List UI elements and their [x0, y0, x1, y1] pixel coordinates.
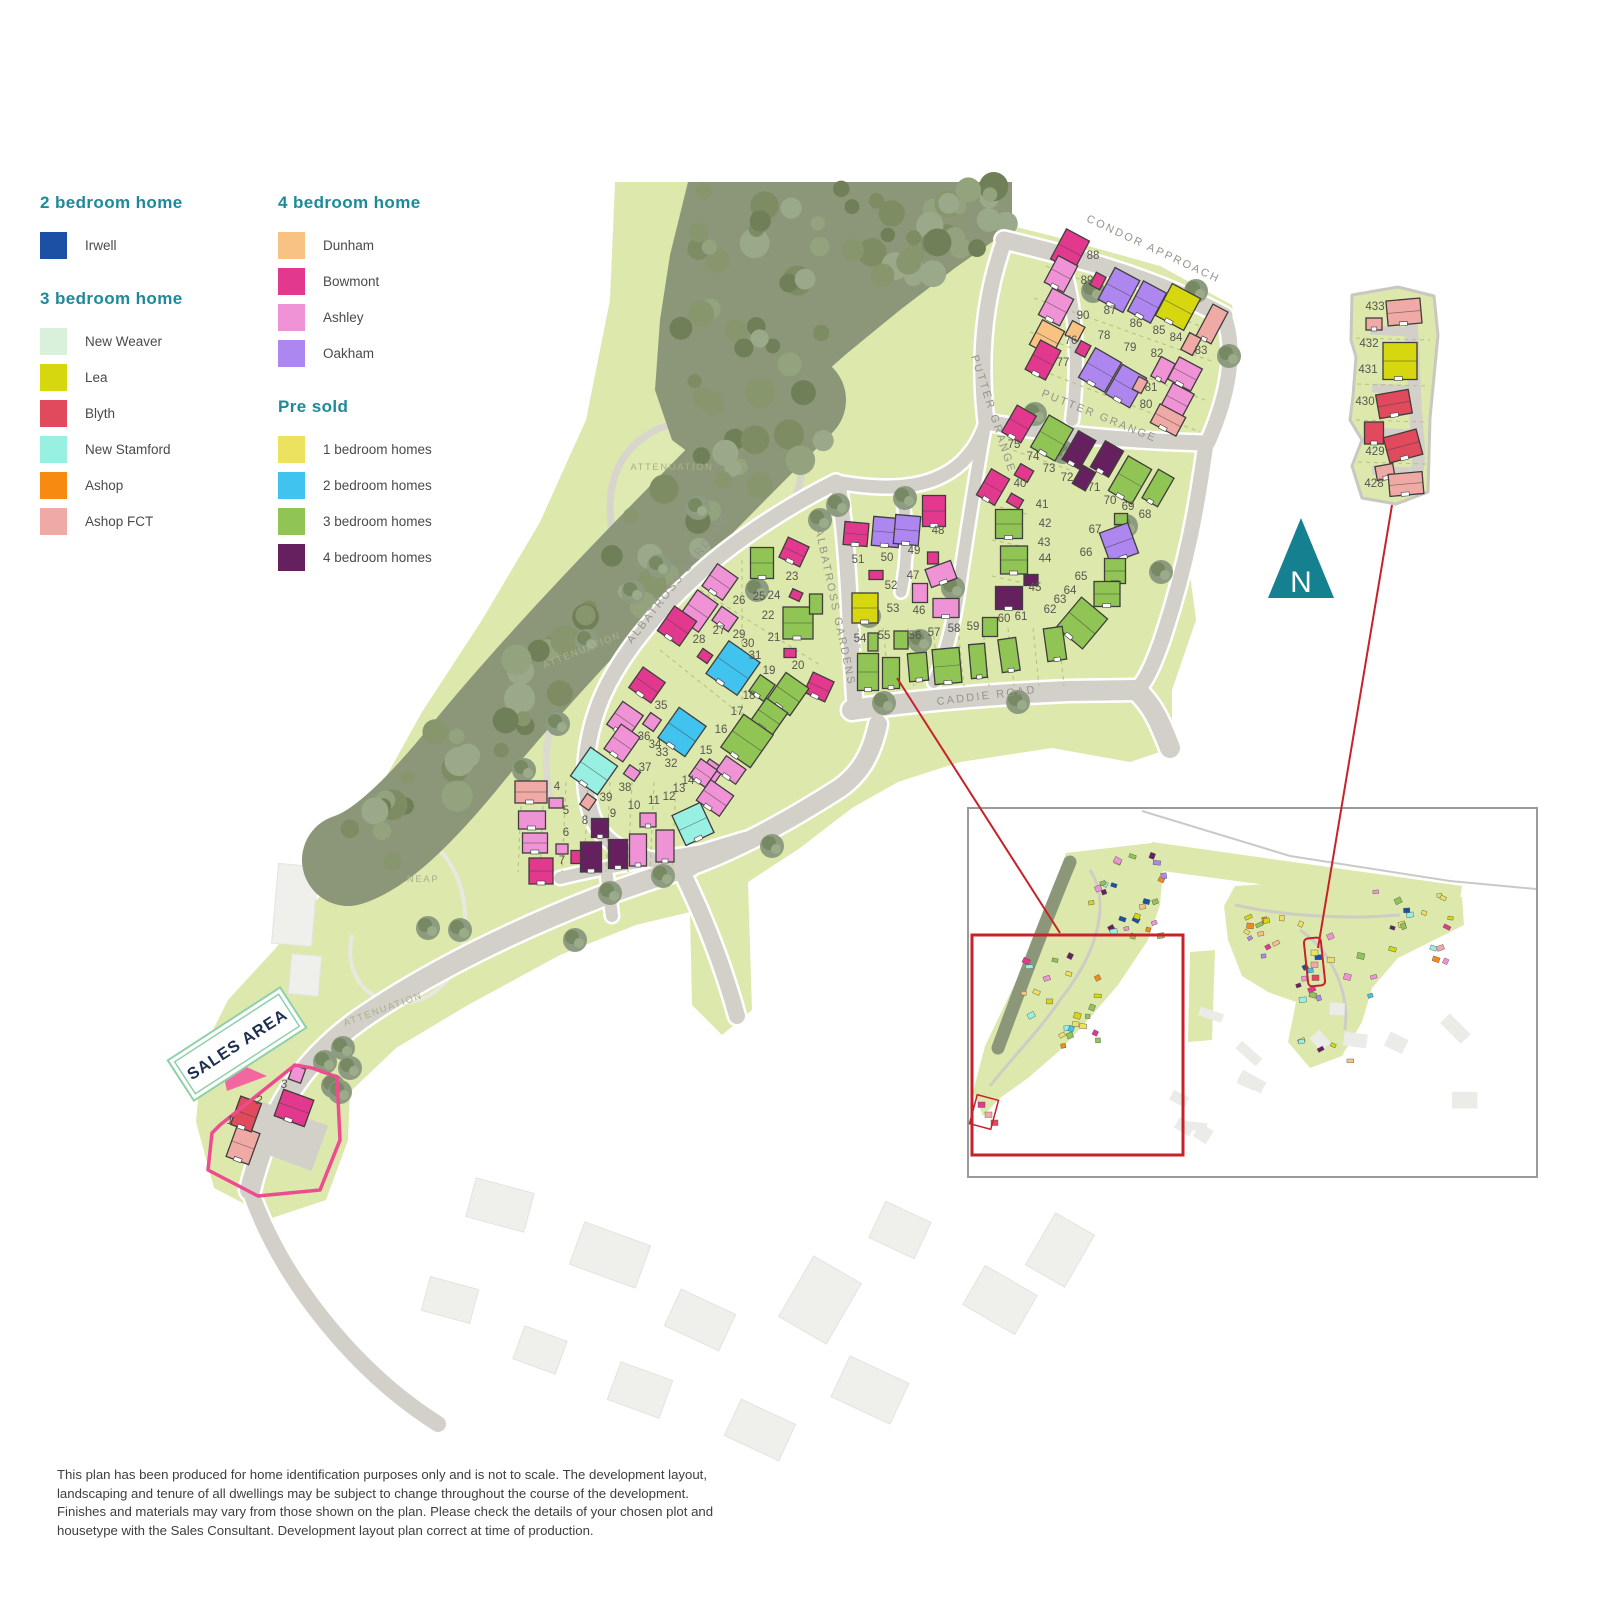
- legend-item-label: Dunham: [323, 238, 374, 253]
- plot-number: 77: [1057, 357, 1070, 369]
- legend-item-label: Ashop: [85, 478, 123, 493]
- legend-item-label: 1 bedroom homes: [323, 442, 432, 457]
- tree-icon: [546, 712, 570, 736]
- house-plot: [969, 643, 988, 679]
- house-plot: [609, 840, 628, 870]
- legend-swatch: [40, 232, 67, 259]
- plot-number: 41: [1036, 499, 1049, 511]
- plot-number: 3: [281, 1077, 288, 1091]
- area-label: NEAP: [407, 874, 439, 885]
- legend-item: 3 bedroom homes: [278, 503, 468, 539]
- legend-section: 3 bedroom homeNew WeaverLeaBlythNew Stam…: [40, 289, 230, 539]
- plot-number: 21: [768, 632, 781, 644]
- plot-number: 83: [1195, 345, 1208, 357]
- plot-number: 7: [559, 855, 565, 867]
- legend-item: Ashop FCT: [40, 503, 230, 539]
- tree-icon: [512, 758, 536, 782]
- house-plot: [868, 633, 878, 651]
- plot-number: 65: [1075, 571, 1088, 583]
- legend-item: Ashop: [40, 467, 230, 503]
- plot-number: 40: [1014, 478, 1027, 490]
- plot-number: 81: [1145, 382, 1158, 394]
- house-plot: [923, 496, 946, 528]
- house-plot: [1043, 626, 1067, 662]
- plot-number: 28: [693, 634, 706, 646]
- plot-number: 80: [1140, 399, 1153, 411]
- plot-number: 72: [1061, 472, 1074, 484]
- plot-number: 60: [998, 613, 1011, 625]
- legend-section: Pre sold1 bedroom homes2 bedroom homes3 …: [278, 397, 468, 575]
- plot-number: 61: [1015, 611, 1028, 623]
- plot-number: 36: [638, 731, 651, 743]
- plot-number: 18: [743, 690, 756, 702]
- legend-item-label: Blyth: [85, 406, 115, 421]
- tree-icon: [1217, 344, 1241, 368]
- plot-number: 27: [713, 625, 726, 637]
- plot-number: 54: [854, 633, 867, 645]
- plot-number: 24: [768, 590, 781, 602]
- tree-icon: [647, 554, 671, 578]
- house-plot: [784, 649, 796, 658]
- house-plot: [1105, 559, 1126, 585]
- plot-number: 89: [1081, 275, 1094, 287]
- plot-number: 64: [1064, 585, 1077, 597]
- plot-number: 16: [715, 724, 728, 736]
- plot-number: 66: [1080, 547, 1093, 559]
- legend-item: Bowmont: [278, 263, 468, 299]
- house-plot: [933, 599, 959, 619]
- legend-item: 2 bedroom homes: [278, 467, 468, 503]
- plot-number: 55: [878, 630, 891, 642]
- plot-number: 42: [1039, 518, 1052, 530]
- plot-number: 26: [733, 595, 746, 607]
- tree-icon: [1149, 560, 1173, 584]
- house-plot: [592, 819, 609, 839]
- area-label: ATTENUATION: [630, 462, 713, 473]
- legend-swatch: [40, 472, 67, 499]
- plot-number: 433: [1365, 301, 1384, 313]
- legend-item-label: Bowmont: [323, 274, 379, 289]
- legend-swatch: [40, 508, 67, 535]
- tree-icon: [621, 580, 645, 604]
- house-plot: [907, 652, 928, 683]
- house-plot: [858, 654, 879, 692]
- tree-icon: [598, 881, 622, 905]
- tree-icon: [872, 691, 896, 715]
- house-plot: [1001, 546, 1028, 575]
- legend-item: Irwell: [40, 227, 230, 263]
- house-plot: [1094, 582, 1120, 608]
- plot-number: 75: [1008, 439, 1021, 451]
- legend-item-label: 3 bedroom homes: [323, 514, 432, 529]
- legend-item: 1 bedroom homes: [278, 431, 468, 467]
- house-plot: [932, 647, 962, 685]
- house-plot: [571, 851, 581, 864]
- house-plot: [751, 548, 774, 580]
- legend-item: New Weaver: [40, 323, 230, 359]
- house-plot: [869, 571, 883, 580]
- legend-item: 4 bedroom homes: [278, 539, 468, 575]
- legend-column-1: 2 bedroom homeIrwell3 bedroom homeNew We…: [40, 193, 230, 601]
- tree-icon: [686, 496, 710, 520]
- legend-item-label: 4 bedroom homes: [323, 550, 432, 565]
- legend-item: Oakham: [278, 335, 468, 371]
- plot-number: 9: [610, 808, 616, 820]
- plot-number: 68: [1139, 509, 1152, 521]
- legend-section-title: Pre sold: [278, 397, 468, 417]
- plot-number: 78: [1098, 330, 1111, 342]
- legend-swatch: [278, 436, 305, 463]
- plot-number: 44: [1039, 553, 1052, 565]
- house-plot: [852, 593, 878, 624]
- plot-number: 15: [700, 745, 713, 757]
- house-plot: [894, 631, 908, 649]
- plot-number: 8: [582, 815, 588, 827]
- plot-number: 35: [655, 700, 668, 712]
- house-plot: [529, 858, 553, 885]
- legend-swatch: [278, 544, 305, 571]
- legend-swatch: [40, 328, 67, 355]
- house-plot: [810, 594, 823, 614]
- house-plot: [843, 521, 869, 547]
- plot-number: 57: [928, 627, 941, 639]
- house-plot: [883, 658, 900, 690]
- plot-number: 49: [908, 545, 921, 557]
- legend-swatch: [40, 436, 67, 463]
- plot-number: 59: [967, 621, 980, 633]
- tree-icon: [893, 486, 917, 510]
- tree-icon: [651, 864, 675, 888]
- plot-number: 87: [1104, 305, 1117, 317]
- house-plot: [515, 781, 547, 804]
- house-plot: [1388, 472, 1424, 498]
- legend-swatch: [278, 340, 305, 367]
- house-plot: [1115, 514, 1128, 525]
- legend-section: 2 bedroom homeIrwell: [40, 193, 230, 263]
- plot-number: 22: [762, 610, 775, 622]
- site-plan-page: SALES AREA CONDOR APPROACHPUTTER GRANGEP…: [0, 0, 1600, 1600]
- plot-number: 431: [1358, 364, 1377, 376]
- house-plot: [998, 637, 1021, 673]
- house-plot: [928, 552, 939, 564]
- house-plot: [1386, 298, 1422, 327]
- legend-item: New Stamford: [40, 431, 230, 467]
- plot-number: 82: [1151, 348, 1164, 360]
- legend-swatch: [278, 472, 305, 499]
- tree-icon: [328, 1080, 352, 1104]
- plot-number: 69: [1122, 501, 1135, 513]
- house-plot: [581, 842, 602, 873]
- plot-number: 56: [909, 630, 922, 642]
- house-plot: [1365, 422, 1384, 445]
- plot-number: 5: [563, 805, 569, 817]
- legend-swatch: [40, 400, 67, 427]
- house-plot: [549, 798, 563, 808]
- plot-number: 50: [881, 552, 894, 564]
- plot-number: 11: [648, 795, 660, 807]
- plot-number: 85: [1153, 325, 1166, 337]
- legend-section: 4 bedroom homeDunhamBowmontAshleyOakham: [278, 193, 468, 371]
- plot-number: 23: [786, 571, 799, 583]
- plot-number: 58: [948, 623, 961, 635]
- plot-number: 45: [1029, 582, 1042, 594]
- tree-icon: [448, 918, 472, 942]
- legend-item-label: Ashley: [323, 310, 364, 325]
- legend-column-2: 4 bedroom homeDunhamBowmontAshleyOakhamP…: [278, 193, 468, 601]
- plot-number: 79: [1124, 342, 1137, 354]
- tree-icon: [760, 834, 784, 858]
- legend-section-title: 3 bedroom home: [40, 289, 230, 309]
- house-plot: [1383, 343, 1417, 381]
- plot-number: 76: [1065, 335, 1078, 347]
- plot-number: 52: [885, 580, 898, 592]
- legend-swatch: [278, 232, 305, 259]
- house-plot: [893, 514, 921, 546]
- plot-number: 47: [907, 570, 920, 582]
- north-arrow: N: [1268, 518, 1334, 599]
- house-plot: [1366, 318, 1382, 331]
- plot-number: 2: [255, 1093, 263, 1107]
- plot-number: 25: [753, 591, 766, 603]
- house-plot: [783, 607, 813, 640]
- house-plot: [996, 510, 1023, 540]
- legend-item: Dunham: [278, 227, 468, 263]
- plot-number: 430: [1355, 396, 1374, 408]
- legend-item-label: Irwell: [85, 238, 117, 253]
- house-plot: [640, 813, 656, 828]
- plot-number: 46: [913, 605, 926, 617]
- plot-number: 1: [227, 1113, 234, 1127]
- plot-number: 34: [649, 739, 662, 751]
- legend-swatch: [40, 364, 67, 391]
- tree-icon: [563, 928, 587, 952]
- legend-swatch: [278, 304, 305, 331]
- plot-number: 39: [600, 792, 613, 804]
- house-plot: [996, 587, 1023, 611]
- disclaimer-text: This plan has been produced for home ide…: [57, 1466, 729, 1541]
- legend-item-label: Oakham: [323, 346, 374, 361]
- plot-number: 10: [628, 800, 641, 812]
- house-plot: [519, 811, 546, 830]
- legend-item: Blyth: [40, 395, 230, 431]
- plot-number: 88: [1087, 250, 1100, 262]
- legend-item-label: 2 bedroom homes: [323, 478, 432, 493]
- plot-number: 43: [1038, 537, 1051, 549]
- plot-number: 73: [1043, 463, 1056, 475]
- plot-number: 31: [749, 650, 762, 662]
- plot-number: 6: [563, 827, 569, 839]
- plot-number: 30: [742, 638, 755, 650]
- plot-number: 48: [932, 525, 945, 537]
- plot-number: 428: [1364, 478, 1383, 490]
- plot-number: 90: [1077, 310, 1090, 322]
- plot-number: 71: [1088, 482, 1101, 494]
- tree-icon: [338, 1056, 362, 1080]
- legend-item: Ashley: [278, 299, 468, 335]
- plot-number: 429: [1365, 446, 1384, 458]
- legend-item-label: New Weaver: [85, 334, 162, 349]
- plot-number: 84: [1170, 332, 1183, 344]
- legend-section-title: 2 bedroom home: [40, 193, 230, 213]
- legend-item-label: Ashop FCT: [85, 514, 153, 529]
- legend-item: Lea: [40, 359, 230, 395]
- plot-number: 51: [852, 554, 865, 566]
- legend-section-title: 4 bedroom home: [278, 193, 468, 213]
- house-plot: [523, 833, 548, 854]
- house-plot: [913, 584, 928, 603]
- plot-number: 432: [1359, 338, 1378, 350]
- inset-map: [968, 808, 1537, 1177]
- plot-number: 17: [731, 706, 744, 718]
- north-arrow-label: N: [1290, 566, 1312, 599]
- house-plot: [630, 834, 647, 867]
- plot-number: 37: [639, 762, 652, 774]
- house-plot: [656, 830, 674, 863]
- legend-swatch: [278, 508, 305, 535]
- plot-number: 74: [1027, 451, 1040, 463]
- plot-number: 70: [1104, 495, 1117, 507]
- legend: 2 bedroom homeIrwell3 bedroom homeNew We…: [40, 193, 468, 601]
- house-plot: [983, 618, 998, 637]
- plot-number: 53: [887, 603, 900, 615]
- legend-swatch: [278, 268, 305, 295]
- plot-number: 19: [763, 665, 776, 677]
- plot-number: 38: [619, 782, 632, 794]
- plot-number: 4: [554, 781, 561, 793]
- house-plot: [556, 844, 568, 854]
- legend-item-label: New Stamford: [85, 442, 171, 457]
- plot-number: 20: [792, 660, 805, 672]
- plot-number: 14: [682, 775, 695, 787]
- plot-number: 86: [1130, 318, 1143, 330]
- legend-item-label: Lea: [85, 370, 108, 385]
- plot-number: 32: [665, 758, 678, 770]
- tree-icon: [416, 916, 440, 940]
- plot-number: 67: [1089, 524, 1102, 536]
